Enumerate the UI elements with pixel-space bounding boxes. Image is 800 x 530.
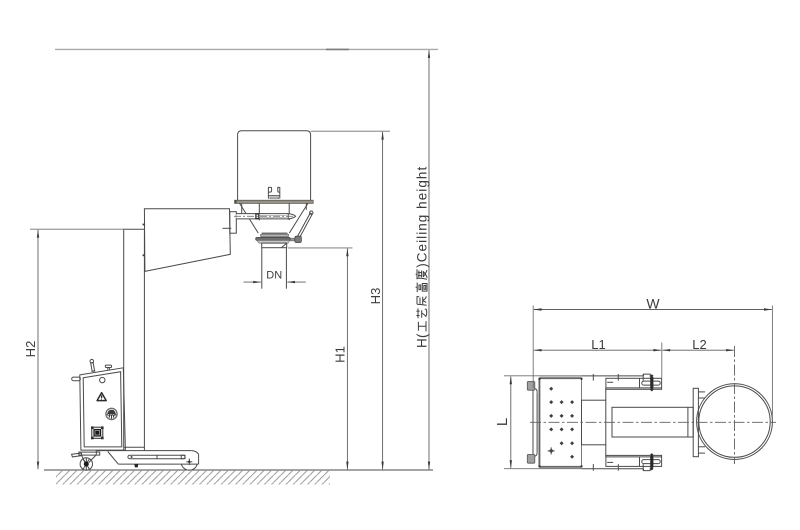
svg-text:W: W xyxy=(646,295,660,311)
svg-text:L2: L2 xyxy=(692,337,706,352)
svg-text:H3: H3 xyxy=(368,288,383,305)
svg-text:H1: H1 xyxy=(333,346,348,363)
svg-text:)Ceiling height: )Ceiling height xyxy=(415,166,430,268)
svg-text:L1: L1 xyxy=(591,337,605,352)
svg-text:L: L xyxy=(494,418,511,426)
svg-text:H(: H( xyxy=(415,333,430,348)
svg-text:H2: H2 xyxy=(23,341,38,358)
svg-text:DN: DN xyxy=(266,269,282,281)
